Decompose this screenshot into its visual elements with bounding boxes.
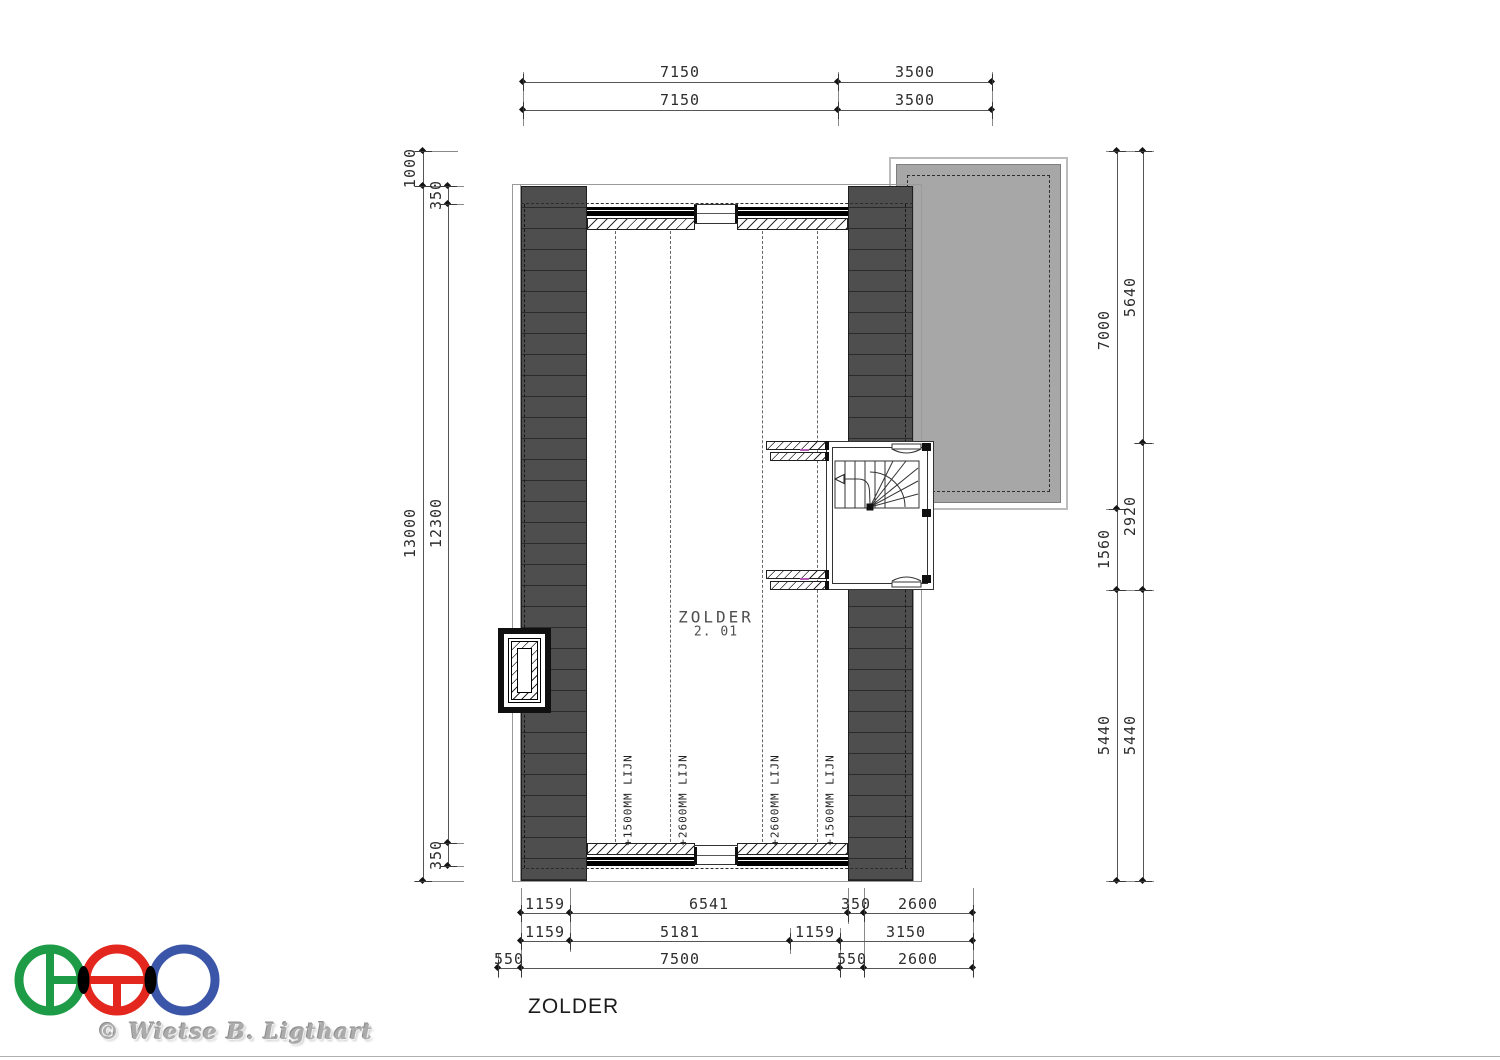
- floorplan-canvas: +1500MM LIJN +2600MM LIJN +2600MM LIJN +…: [0, 0, 1500, 1060]
- dim-label: 350: [841, 895, 871, 913]
- building-outline-left-outer: [512, 184, 513, 882]
- dim-line-left-inner: [448, 186, 449, 866]
- height-line-1: [615, 231, 616, 842]
- stair-stub-wall-top-a: [766, 441, 828, 450]
- dim-label: 1159: [525, 895, 565, 913]
- dim-label: 7000: [1095, 310, 1113, 350]
- dim-label: 3500: [895, 91, 935, 109]
- sheet-border-bottom: [0, 1056, 1500, 1057]
- top-window-jamb-right: [735, 205, 738, 223]
- stair-stub-wall-bottom-a: [766, 570, 828, 579]
- dim-label: 7150: [660, 91, 700, 109]
- dim-label: 350: [427, 180, 445, 210]
- height-line-3: [762, 231, 763, 842]
- sheet-title: ZOLDER: [528, 995, 619, 1019]
- dim-line-top-2: [523, 110, 992, 111]
- dim-label: 5440: [1121, 715, 1139, 755]
- bottom-window-sill: [695, 855, 737, 856]
- dim-label: 2600: [898, 950, 938, 968]
- top-wall-right: [737, 207, 848, 216]
- dim-line-left-outer: [423, 151, 424, 881]
- dim-label: 3150: [886, 923, 926, 941]
- dim-label: 12300: [427, 498, 445, 548]
- stair-marker-bottom: [800, 578, 809, 580]
- bottom-window-jamb-left: [694, 847, 697, 865]
- height-line-label-2: +2600MM LIJN: [677, 754, 690, 845]
- height-line-label-3: +2600MM LIJN: [769, 754, 782, 845]
- dim-label: 2920: [1121, 496, 1139, 536]
- dim-label: 2600: [898, 895, 938, 913]
- dim-line-top-1: [523, 82, 992, 83]
- dim-label: 3500: [895, 63, 935, 81]
- room-number: 2. 01: [694, 625, 738, 640]
- dim-label: 7150: [660, 63, 700, 81]
- dim-label: 5440: [1095, 715, 1113, 755]
- top-window-sill: [695, 213, 737, 214]
- dim-label: 1000: [401, 148, 419, 188]
- chimney-flue: [517, 648, 532, 693]
- architect-logo: [10, 941, 240, 1021]
- dim-label: 7500: [660, 950, 700, 968]
- dim-label: 350: [427, 840, 445, 870]
- dim-label: 550: [837, 950, 867, 968]
- height-line-4: [817, 231, 818, 842]
- copyright-text: © Wietse B. Ligthart: [97, 1019, 373, 1045]
- stair-treads-drawing: [826, 441, 936, 591]
- top-wall-hatch-right: [737, 218, 848, 230]
- top-window: [694, 204, 738, 224]
- roof-band-left: [521, 186, 587, 881]
- dim-line-bottom-1: [521, 913, 973, 914]
- dim-label: 1159: [795, 923, 835, 941]
- dim-label: 1159: [525, 923, 565, 941]
- building-outline-top: [512, 184, 922, 185]
- stair-stub-wall-bottom-b: [770, 581, 828, 590]
- bottom-wall-right: [737, 857, 848, 866]
- building-outline-bottom: [512, 881, 922, 882]
- dim-line-right-outer: [1143, 151, 1144, 881]
- logo-ring-blue: [153, 949, 215, 1011]
- dim-line-right-inner: [1117, 151, 1118, 881]
- bottom-wall-left: [587, 857, 695, 866]
- dim-label: 13000: [401, 508, 419, 558]
- dim-label: 1560: [1095, 529, 1113, 569]
- height-line-2: [670, 231, 671, 842]
- roof-hidden-line-left: [524, 204, 525, 868]
- top-window-jamb-left: [694, 205, 697, 223]
- dim-label: 5640: [1121, 277, 1139, 317]
- height-line-label-4: +1500MM LIJN: [824, 754, 837, 845]
- top-wall-hatch-left: [587, 218, 695, 230]
- dim-label: 5181: [660, 923, 700, 941]
- bottom-window-jamb-right: [735, 847, 738, 865]
- stair-marker-top: [800, 449, 809, 451]
- dim-line-bottom-2: [521, 941, 973, 942]
- dim-label: 6541: [689, 895, 729, 913]
- stair-stub-wall-top-b: [770, 452, 828, 461]
- dim-label: 550: [494, 950, 524, 968]
- hidden-line-bottom: [521, 868, 913, 869]
- dim-line-bottom-3: [498, 968, 973, 969]
- top-wall-left: [587, 207, 695, 216]
- height-line-label-1: +1500MM LIJN: [622, 754, 635, 845]
